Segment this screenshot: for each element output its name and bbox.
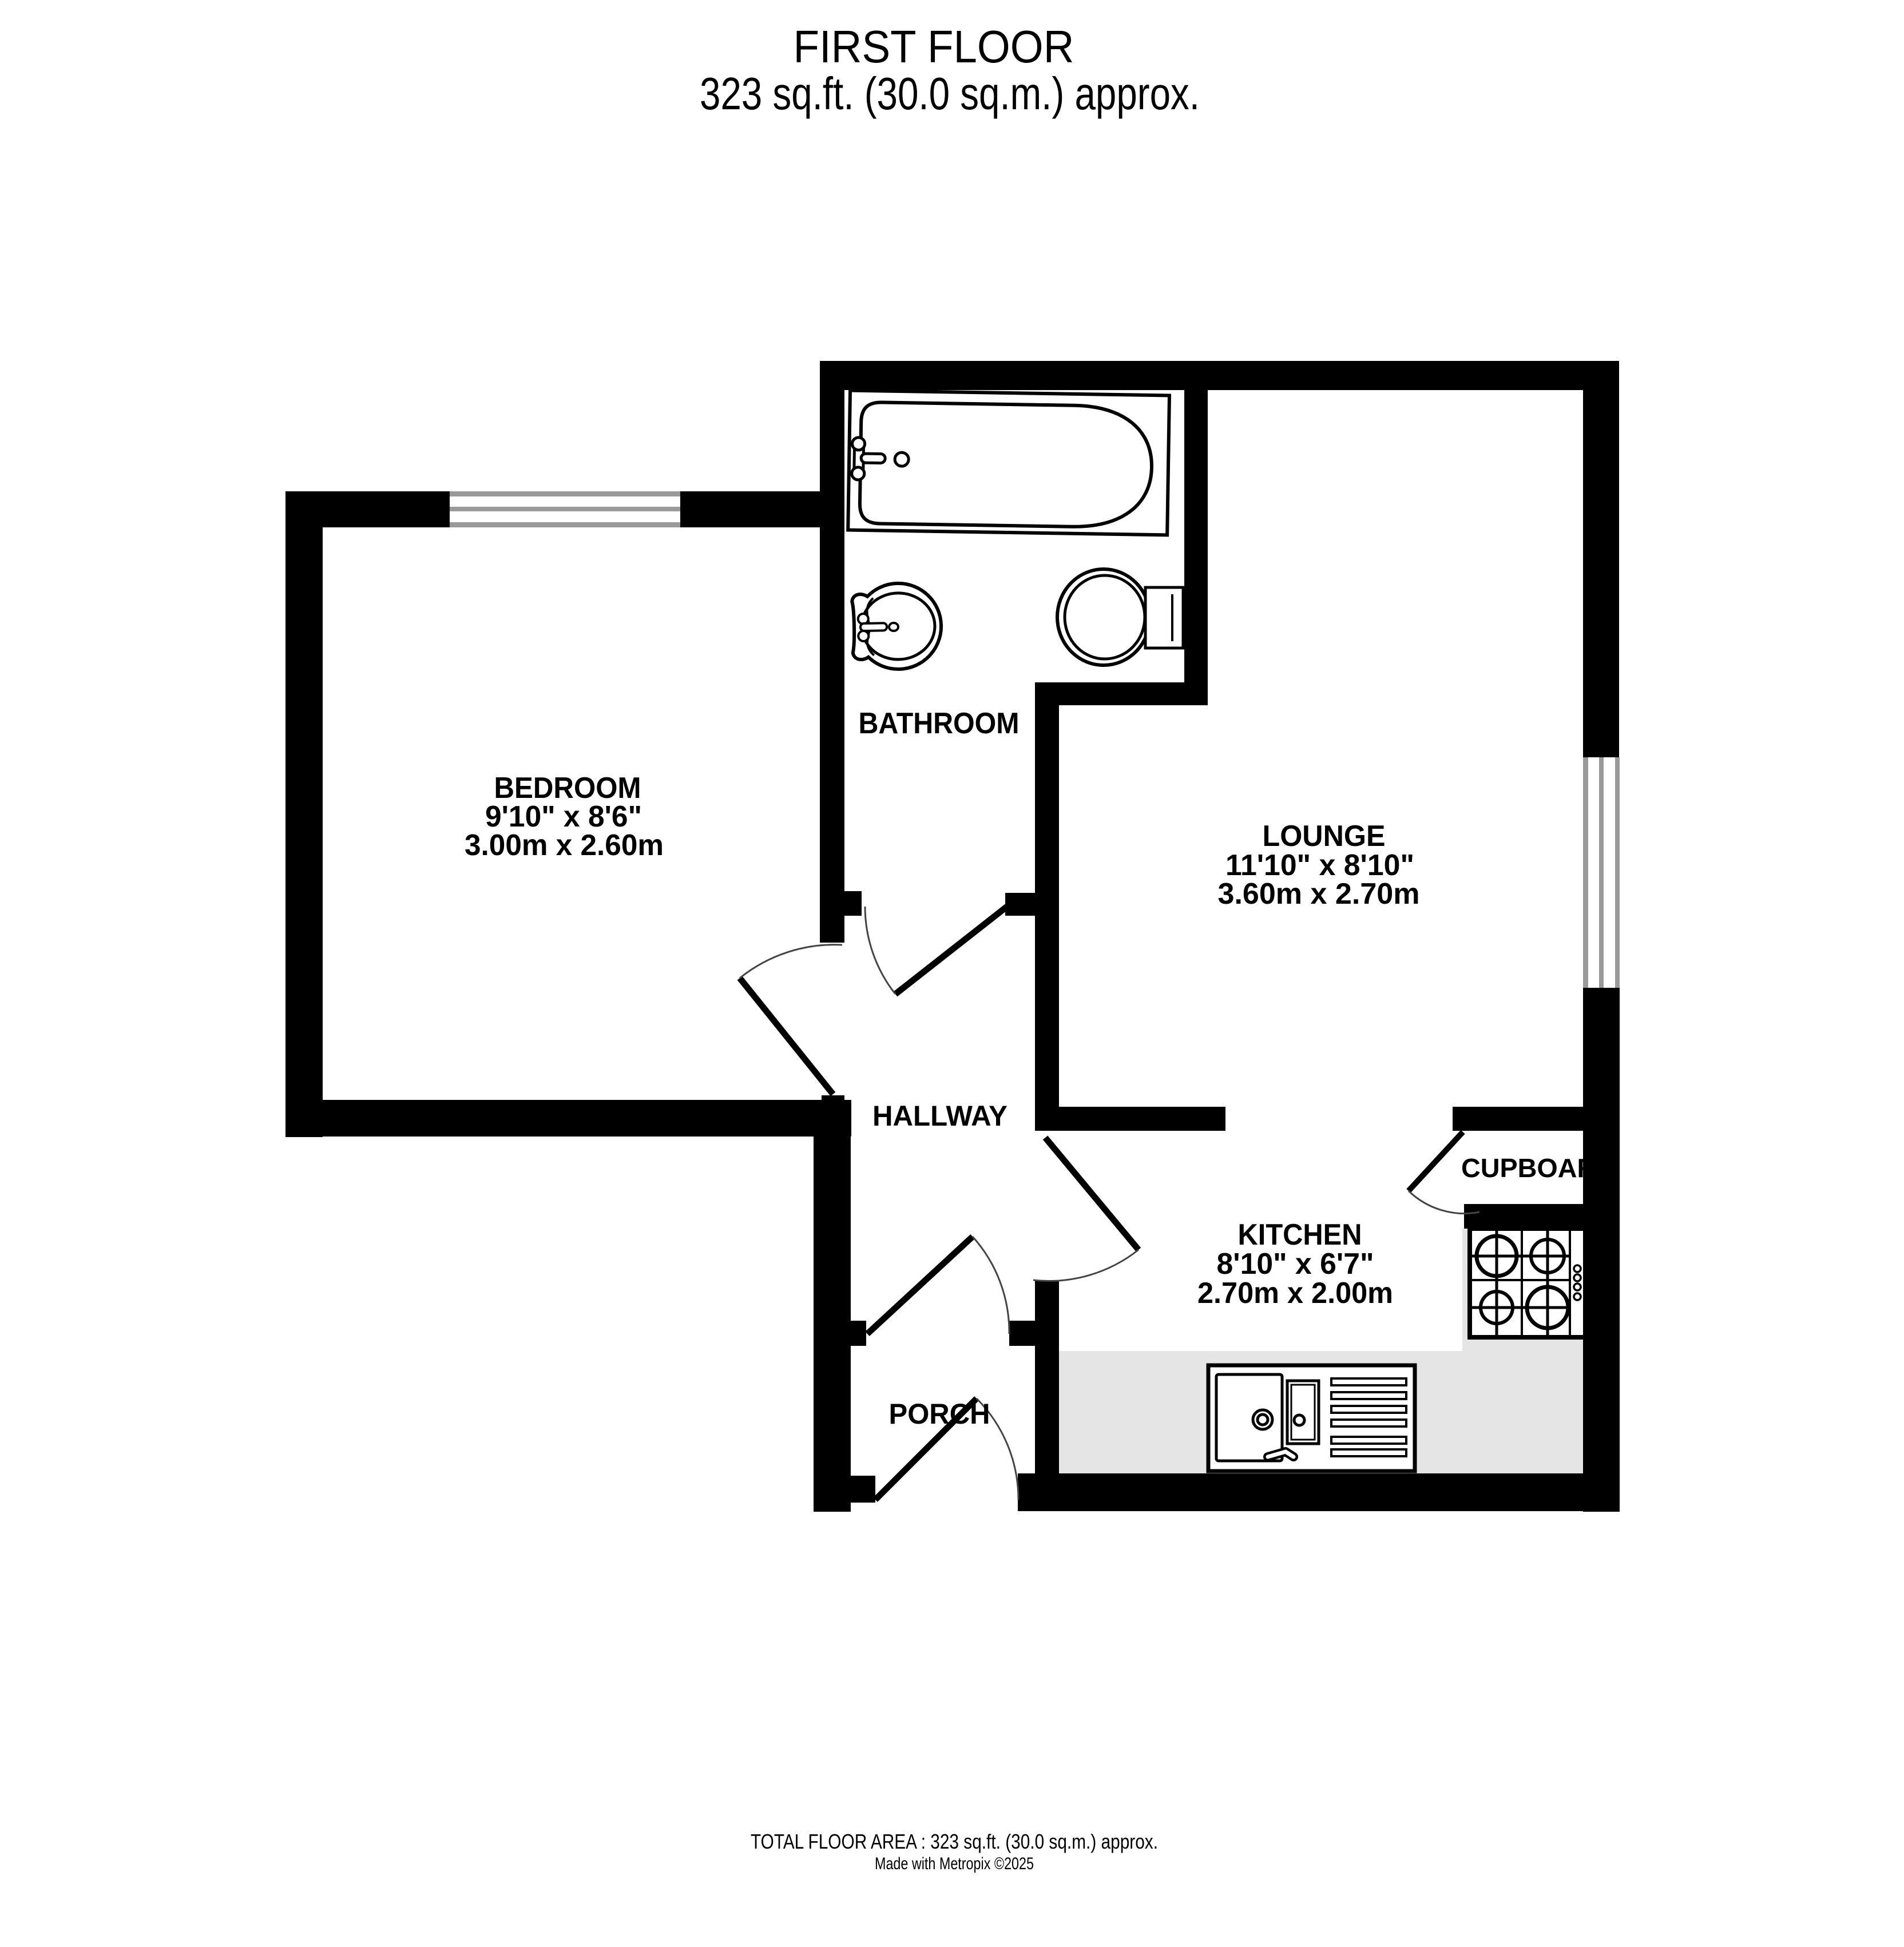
svg-text:PORCH: PORCH — [889, 1398, 990, 1430]
svg-text:FIRST FLOOR: FIRST FLOOR — [794, 21, 1074, 72]
svg-text:8'10" x 6'7": 8'10" x 6'7" — [1217, 1247, 1374, 1281]
svg-text:BATHROOM: BATHROOM — [859, 707, 1020, 740]
svg-text:LOUNGE: LOUNGE — [1263, 820, 1386, 853]
svg-text:3.00m x 2.60m: 3.00m x 2.60m — [465, 829, 664, 862]
svg-text:2.70m x 2.00m: 2.70m x 2.00m — [1197, 1277, 1393, 1310]
svg-text:3.60m x 2.70m: 3.60m x 2.70m — [1218, 877, 1420, 911]
svg-text:TOTAL FLOOR AREA : 323 sq.ft.: TOTAL FLOOR AREA : 323 sq.ft. (30.0 sq.m… — [751, 1830, 1158, 1853]
svg-text:Made with Metropix ©2025: Made with Metropix ©2025 — [875, 1854, 1034, 1873]
svg-text:KITCHEN: KITCHEN — [1238, 1218, 1362, 1251]
svg-text:323 sq.ft. (30.0 sq.m.) approx: 323 sq.ft. (30.0 sq.m.) approx. — [700, 68, 1200, 119]
svg-text:HALLWAY: HALLWAY — [872, 1100, 1007, 1132]
